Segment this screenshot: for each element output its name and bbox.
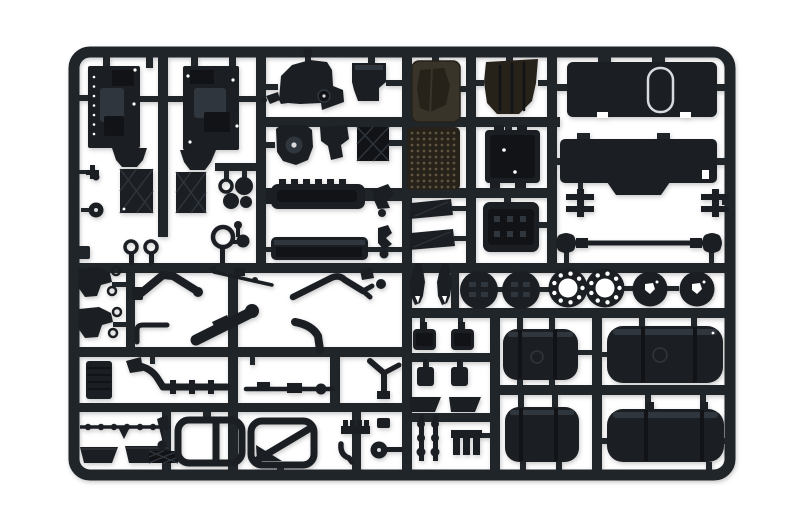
fuel-tank-strap [519, 408, 523, 461]
stub [250, 357, 255, 365]
gear-lever-knob [431, 434, 439, 442]
locating-hole [502, 148, 506, 152]
locating-hole [123, 208, 126, 211]
suspension-hanger-top [441, 263, 449, 271]
stub [517, 318, 523, 330]
stub [77, 95, 88, 101]
runner-h4 [495, 385, 732, 395]
muffler-lug [339, 179, 346, 185]
fitting-bar-disc [316, 384, 327, 395]
equipment-box-shade [276, 247, 362, 257]
stub [140, 96, 158, 102]
ring-pin-stem [129, 253, 134, 265]
exhaust-downpipe-end [245, 304, 259, 318]
fuel-tank-tab [646, 402, 654, 410]
locating-hole [712, 332, 715, 335]
battery-box-latch [507, 231, 513, 237]
runner-v9 [228, 268, 238, 472]
wheel-hub-slot [523, 292, 530, 297]
ribbed-step-tooth [364, 420, 369, 426]
muffler-lug [315, 179, 322, 185]
fender-bracket-ring [113, 308, 121, 316]
stub [454, 236, 466, 241]
air-filter-face [416, 333, 433, 346]
axle-bracket [712, 189, 719, 217]
small-bracket [360, 268, 374, 280]
air-filter-face [454, 333, 471, 346]
fuel-tank-strap [644, 410, 648, 461]
mount-block [451, 367, 468, 386]
drive-shaft-collar [576, 238, 588, 248]
small-lever-knob [158, 441, 167, 450]
cab-back-foot [490, 182, 500, 188]
comb-bracket-tooth [453, 438, 460, 455]
stub [539, 222, 547, 228]
battery-box-latch [507, 216, 513, 222]
mud-flap [449, 397, 481, 412]
stub [452, 206, 466, 211]
small-blob [240, 196, 252, 208]
wheel-hub-slot [469, 282, 476, 287]
fuel-tank-highlight [508, 332, 573, 337]
battery-box-face [488, 209, 534, 245]
runner-h9 [215, 163, 260, 171]
locating-hole [656, 281, 659, 284]
stub [549, 318, 555, 330]
stub [332, 263, 337, 271]
fender-bracket-ring [108, 287, 116, 295]
runner-h5 [406, 353, 496, 362]
panel-left-tread-plate [120, 169, 153, 213]
elbow-bracket [341, 444, 352, 462]
air-line-pipe [293, 276, 363, 297]
locating-hole [132, 102, 135, 105]
exhaust-elbow-end [193, 287, 203, 297]
cab-floor-panel-right-detail [204, 112, 230, 132]
muffler-lug [291, 179, 298, 185]
fuel-tank-small [505, 407, 579, 462]
small-disc [376, 279, 386, 289]
suspension-hanger-top [414, 263, 422, 271]
ribbed-battery [86, 361, 112, 399]
tread-strip [149, 451, 178, 463]
stub [79, 170, 87, 174]
locating-hole [186, 74, 189, 77]
stub [577, 133, 590, 140]
wheel-hub-drum [502, 271, 540, 309]
stub [691, 316, 697, 327]
stemmed-disc-arm [387, 447, 403, 452]
stub [549, 380, 555, 386]
stub [113, 322, 127, 327]
cab-back-tab [494, 125, 504, 131]
exhaust-elbow-pipe [140, 275, 197, 294]
stub [556, 462, 562, 471]
wheel-rim-ring [549, 269, 588, 308]
stub [476, 80, 484, 86]
locating-hole [231, 78, 234, 81]
side-skirt-lower-extension [607, 182, 670, 195]
stub [517, 380, 523, 386]
comb-bracket [451, 430, 482, 438]
wheel-hub-slot [511, 282, 518, 287]
exhaust-pipe-collar [189, 380, 195, 394]
stemmed-disc-center [377, 448, 381, 452]
muffler-endcap [266, 188, 272, 204]
battery-box-latch [494, 231, 500, 237]
locating-hole [133, 68, 136, 71]
pipe-fork-foot [377, 391, 390, 399]
panel-right-neck [180, 150, 216, 170]
air-filter-tab [420, 322, 427, 330]
side-skirt-panel-upper [567, 62, 717, 117]
fender-bracket [78, 307, 113, 338]
engine-block-bore-center [322, 94, 325, 97]
muffler-body-shade [277, 190, 357, 202]
wheel-hub-slot [523, 282, 530, 287]
cab-back-foot [515, 182, 526, 188]
ribbed-step-tooth [343, 420, 348, 426]
side-skirt-notch [702, 170, 709, 179]
stub [260, 142, 275, 148]
linkage-rod-block [234, 268, 245, 276]
runner-equator [77, 263, 730, 273]
fuel-tank-highlight [613, 329, 717, 335]
ribbed-step-tooth [357, 420, 362, 426]
small-disc [223, 193, 239, 209]
tie-rod-drop-arm [118, 427, 130, 439]
fuel-tank-strap [554, 408, 558, 461]
gear-lever-knob [431, 448, 440, 457]
linkage-rod-bead [252, 277, 258, 283]
engine-arm-knob [261, 97, 267, 103]
stub [460, 86, 466, 92]
engine-bracket [320, 125, 349, 160]
wheel-hub-slot [481, 282, 488, 287]
stub [168, 96, 183, 102]
runner-v6 [451, 268, 459, 313]
gear-lever-knob [417, 420, 425, 428]
fuel-tank-strap [641, 327, 645, 382]
battery-box-latch [520, 216, 526, 222]
stub [146, 57, 153, 68]
fitting-bar-block [287, 383, 302, 393]
locating-hole [188, 140, 191, 143]
runner-h7 [77, 347, 407, 357]
muffler-lug [279, 179, 286, 185]
drive-shaft-collar [690, 238, 702, 248]
small-bracket [372, 184, 394, 209]
mount-block-stem [457, 359, 461, 368]
side-skirt-notch [597, 112, 608, 118]
stub [504, 195, 511, 202]
small-ball-stem [234, 221, 242, 229]
small-bracket-disc [380, 250, 389, 259]
stub [482, 433, 490, 438]
stub [553, 158, 560, 165]
radiator-grille-plate [407, 127, 460, 190]
gear-lever-knob [417, 448, 426, 457]
cab-floor-panel-left-detail [104, 116, 124, 136]
stub [657, 133, 670, 140]
locating-hole [235, 124, 238, 127]
sprue-parts-layer [74, 48, 732, 475]
stub [538, 80, 547, 86]
toothed-disc-center [94, 208, 98, 212]
cab-floor-panel-left-detail [112, 70, 134, 86]
air-filter-tab [458, 322, 465, 330]
side-skirt-panel-lower [560, 139, 717, 183]
gear-lever-knob [417, 434, 425, 442]
battery-box-latch [494, 216, 500, 222]
stub [239, 96, 256, 102]
large-ring-stem [220, 247, 225, 263]
mount-block [417, 367, 434, 386]
axle-bracket [577, 189, 584, 217]
drive-shaft-ujoint [702, 233, 722, 253]
frame-corner-block [78, 246, 90, 259]
small-disc [235, 177, 253, 195]
stub [260, 84, 278, 90]
wheel-hub-slot [511, 292, 518, 297]
gearbox-ribs [355, 65, 383, 70]
battery-box-latch [520, 231, 526, 237]
wheel-hub-slot [469, 292, 476, 297]
model-kit-sprue-photo [0, 0, 800, 530]
stub [666, 286, 679, 291]
small-ring [220, 180, 232, 192]
stub [552, 395, 558, 408]
stub [520, 462, 526, 471]
stub [706, 462, 712, 471]
runner-v10 [330, 350, 340, 410]
fuel-tank-strap [700, 410, 704, 461]
exhaust-elbow-fitting [132, 287, 143, 300]
wheel-hub-drum [460, 271, 498, 309]
mesh-grille [357, 127, 389, 161]
mud-flap [409, 397, 441, 412]
exhaust-pipe-collar [170, 380, 176, 394]
fuel-tank-strap [693, 327, 697, 382]
ribbed-step-tooth [350, 420, 355, 426]
fuel-tank-tab [700, 402, 708, 410]
ribbed-step [341, 426, 370, 434]
muffler-lug [303, 179, 310, 185]
pipe-fork [370, 361, 384, 391]
panel-left-neck [112, 148, 147, 167]
equipment-box-rim [274, 240, 365, 245]
stub [639, 316, 645, 327]
stub [386, 80, 402, 86]
fitting-bar-block [257, 382, 270, 391]
fender-bracket [78, 267, 112, 297]
wheel-rim-ring [586, 269, 625, 308]
stub [553, 84, 567, 91]
stub [599, 438, 608, 444]
stub [81, 208, 90, 212]
air-line-fork [363, 286, 372, 297]
stub [150, 357, 155, 364]
drive-shaft-ujoint [556, 233, 576, 253]
engine-arm [266, 92, 280, 104]
locating-hole [703, 281, 706, 284]
stub [518, 395, 524, 408]
engine-block [279, 60, 344, 110]
small-l-pipe [137, 325, 167, 342]
stub [578, 350, 592, 355]
large-ring [213, 227, 233, 247]
stub [389, 140, 402, 146]
small-cross-fitting [93, 174, 100, 181]
runner-h8 [77, 403, 406, 412]
pipe-elbow [295, 322, 320, 350]
comb-bracket-tooth [463, 438, 470, 455]
stub [722, 200, 730, 205]
stub [717, 84, 728, 91]
ring-pin [145, 241, 157, 253]
fender-bracket-ring [109, 329, 117, 337]
locating-hole [513, 170, 517, 174]
stub [260, 247, 271, 252]
ring-pin-stem [149, 253, 154, 265]
engine-front-boss-center [291, 142, 296, 147]
side-skirt-notch [680, 112, 691, 118]
runner-v11 [126, 268, 135, 352]
runner-v1 [158, 57, 168, 237]
small-bracket-disc [378, 209, 386, 217]
wheel-hub-slot [481, 292, 488, 297]
stub [112, 282, 127, 287]
panel-right-tread-plate [176, 172, 206, 213]
pipe-fork-branch [384, 365, 399, 373]
gear-lever-knob [431, 420, 439, 428]
stub [623, 286, 633, 291]
cab-floor-panel-right-detail [190, 70, 214, 84]
cab-back-tab [517, 125, 527, 131]
ring-pin [125, 241, 137, 253]
cab-back-panel-shade [490, 135, 535, 178]
small-square-fitting [377, 418, 390, 428]
exhaust-pipe-collar [208, 380, 214, 394]
mount-block-stem [423, 359, 427, 368]
fuel-tank-strap [553, 330, 557, 379]
fuel-tank-strap [518, 330, 522, 379]
stub [231, 240, 239, 244]
runner-h3 [406, 308, 732, 318]
muffler-lug [327, 179, 334, 185]
stub [505, 122, 512, 130]
sprue-photo-stage [0, 0, 800, 530]
runner-v4 [466, 57, 476, 270]
comb-bracket-tooth [473, 438, 480, 455]
small-bracket [378, 225, 392, 250]
seat-cushion-detail [417, 68, 450, 112]
